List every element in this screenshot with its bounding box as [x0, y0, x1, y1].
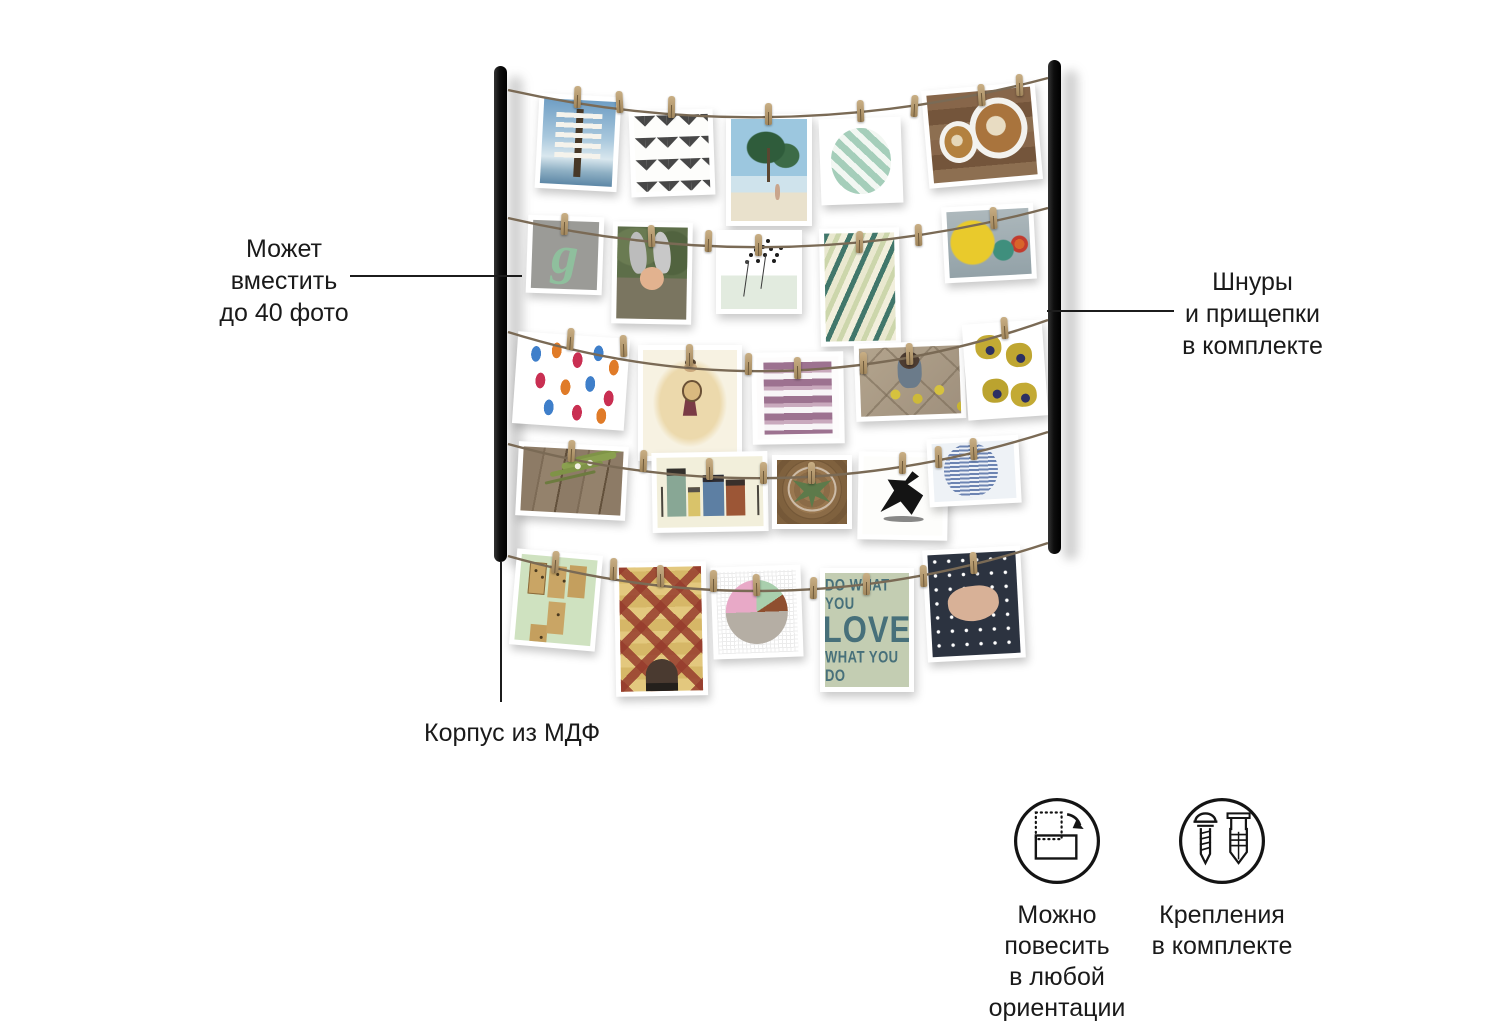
feature-label-line: Крепления: [1127, 900, 1317, 931]
clothespin: [899, 452, 906, 474]
callout-line-capacity: [350, 275, 522, 277]
material-label: Корпус из МДФ: [424, 717, 600, 749]
clothespin: [765, 103, 772, 125]
clothespin: [561, 213, 569, 235]
product-illustration: g DO WHAT YOU LOVE WHAT YOU DO: [0, 0, 1500, 1000]
callout-line-cords: [1047, 310, 1174, 312]
callout-line-material: [500, 562, 502, 702]
clothespin: [906, 343, 914, 365]
clothespin: [668, 96, 675, 118]
feature-orientation: Можно повесить в любой ориентации: [962, 795, 1152, 1024]
feature-label-line: ориентации: [962, 993, 1152, 1024]
clothespin: [620, 335, 628, 357]
feature-orientation-label: Можно повесить в любой ориентации: [962, 900, 1152, 1024]
feature-fasteners: Крепления в комплекте: [1127, 795, 1317, 962]
frame-rail-right: [1048, 60, 1061, 554]
clothespin: [989, 207, 997, 229]
feature-label-line: Можно повесить: [962, 900, 1152, 962]
clothespin: [567, 440, 575, 462]
clothespin: [753, 574, 761, 596]
clothespin: [920, 565, 928, 587]
clothespin: [705, 230, 713, 252]
clothespin: [755, 234, 762, 256]
clothespin: [856, 231, 863, 253]
capacity-label: Может вместить до 40 фото: [204, 233, 364, 329]
clothespin: [760, 462, 767, 484]
clothespin: [808, 462, 815, 484]
clothespin: [810, 577, 817, 599]
clothespin: [657, 565, 664, 587]
feature-label-line: в комплекте: [1127, 931, 1317, 962]
cords-label-line: Шнуры: [1160, 266, 1345, 298]
cords-label: Шнуры и прищепки в комплекте: [1160, 266, 1345, 362]
clothespin: [969, 438, 977, 460]
cords-label-line: и прищепки: [1160, 298, 1345, 330]
clothespin: [710, 570, 717, 592]
clothespin: [745, 353, 752, 375]
clothespin: [706, 458, 713, 480]
clothespin: [863, 573, 870, 595]
clothespin: [1016, 74, 1024, 96]
clothespin: [977, 84, 986, 106]
rotate-orientation-icon: [1011, 795, 1103, 887]
capacity-label-line: Может: [204, 233, 364, 265]
feature-fasteners-label: Крепления в комплекте: [1127, 900, 1317, 962]
cords-label-line: в комплекте: [1160, 330, 1345, 362]
clothespin: [857, 100, 865, 122]
clothespin: [686, 344, 693, 366]
clothespin: [615, 91, 623, 113]
clothespin: [969, 552, 977, 574]
clothespin: [1000, 317, 1009, 339]
capacity-label-line: вместить: [204, 265, 364, 297]
clothespin: [935, 446, 943, 468]
capacity-label-line: до 40 фото: [204, 297, 364, 329]
clothespin: [640, 450, 648, 472]
clothespin: [648, 225, 656, 247]
clothespin: [860, 352, 867, 374]
feature-label-line: в любой: [962, 962, 1152, 993]
screw-and-anchor-icon: [1176, 795, 1268, 887]
clothespin: [574, 86, 582, 108]
clothespin: [794, 357, 801, 379]
clothespin: [915, 224, 923, 246]
clothespin: [910, 95, 918, 117]
clothespin: [610, 558, 618, 580]
frame-rail-left: [494, 66, 507, 562]
